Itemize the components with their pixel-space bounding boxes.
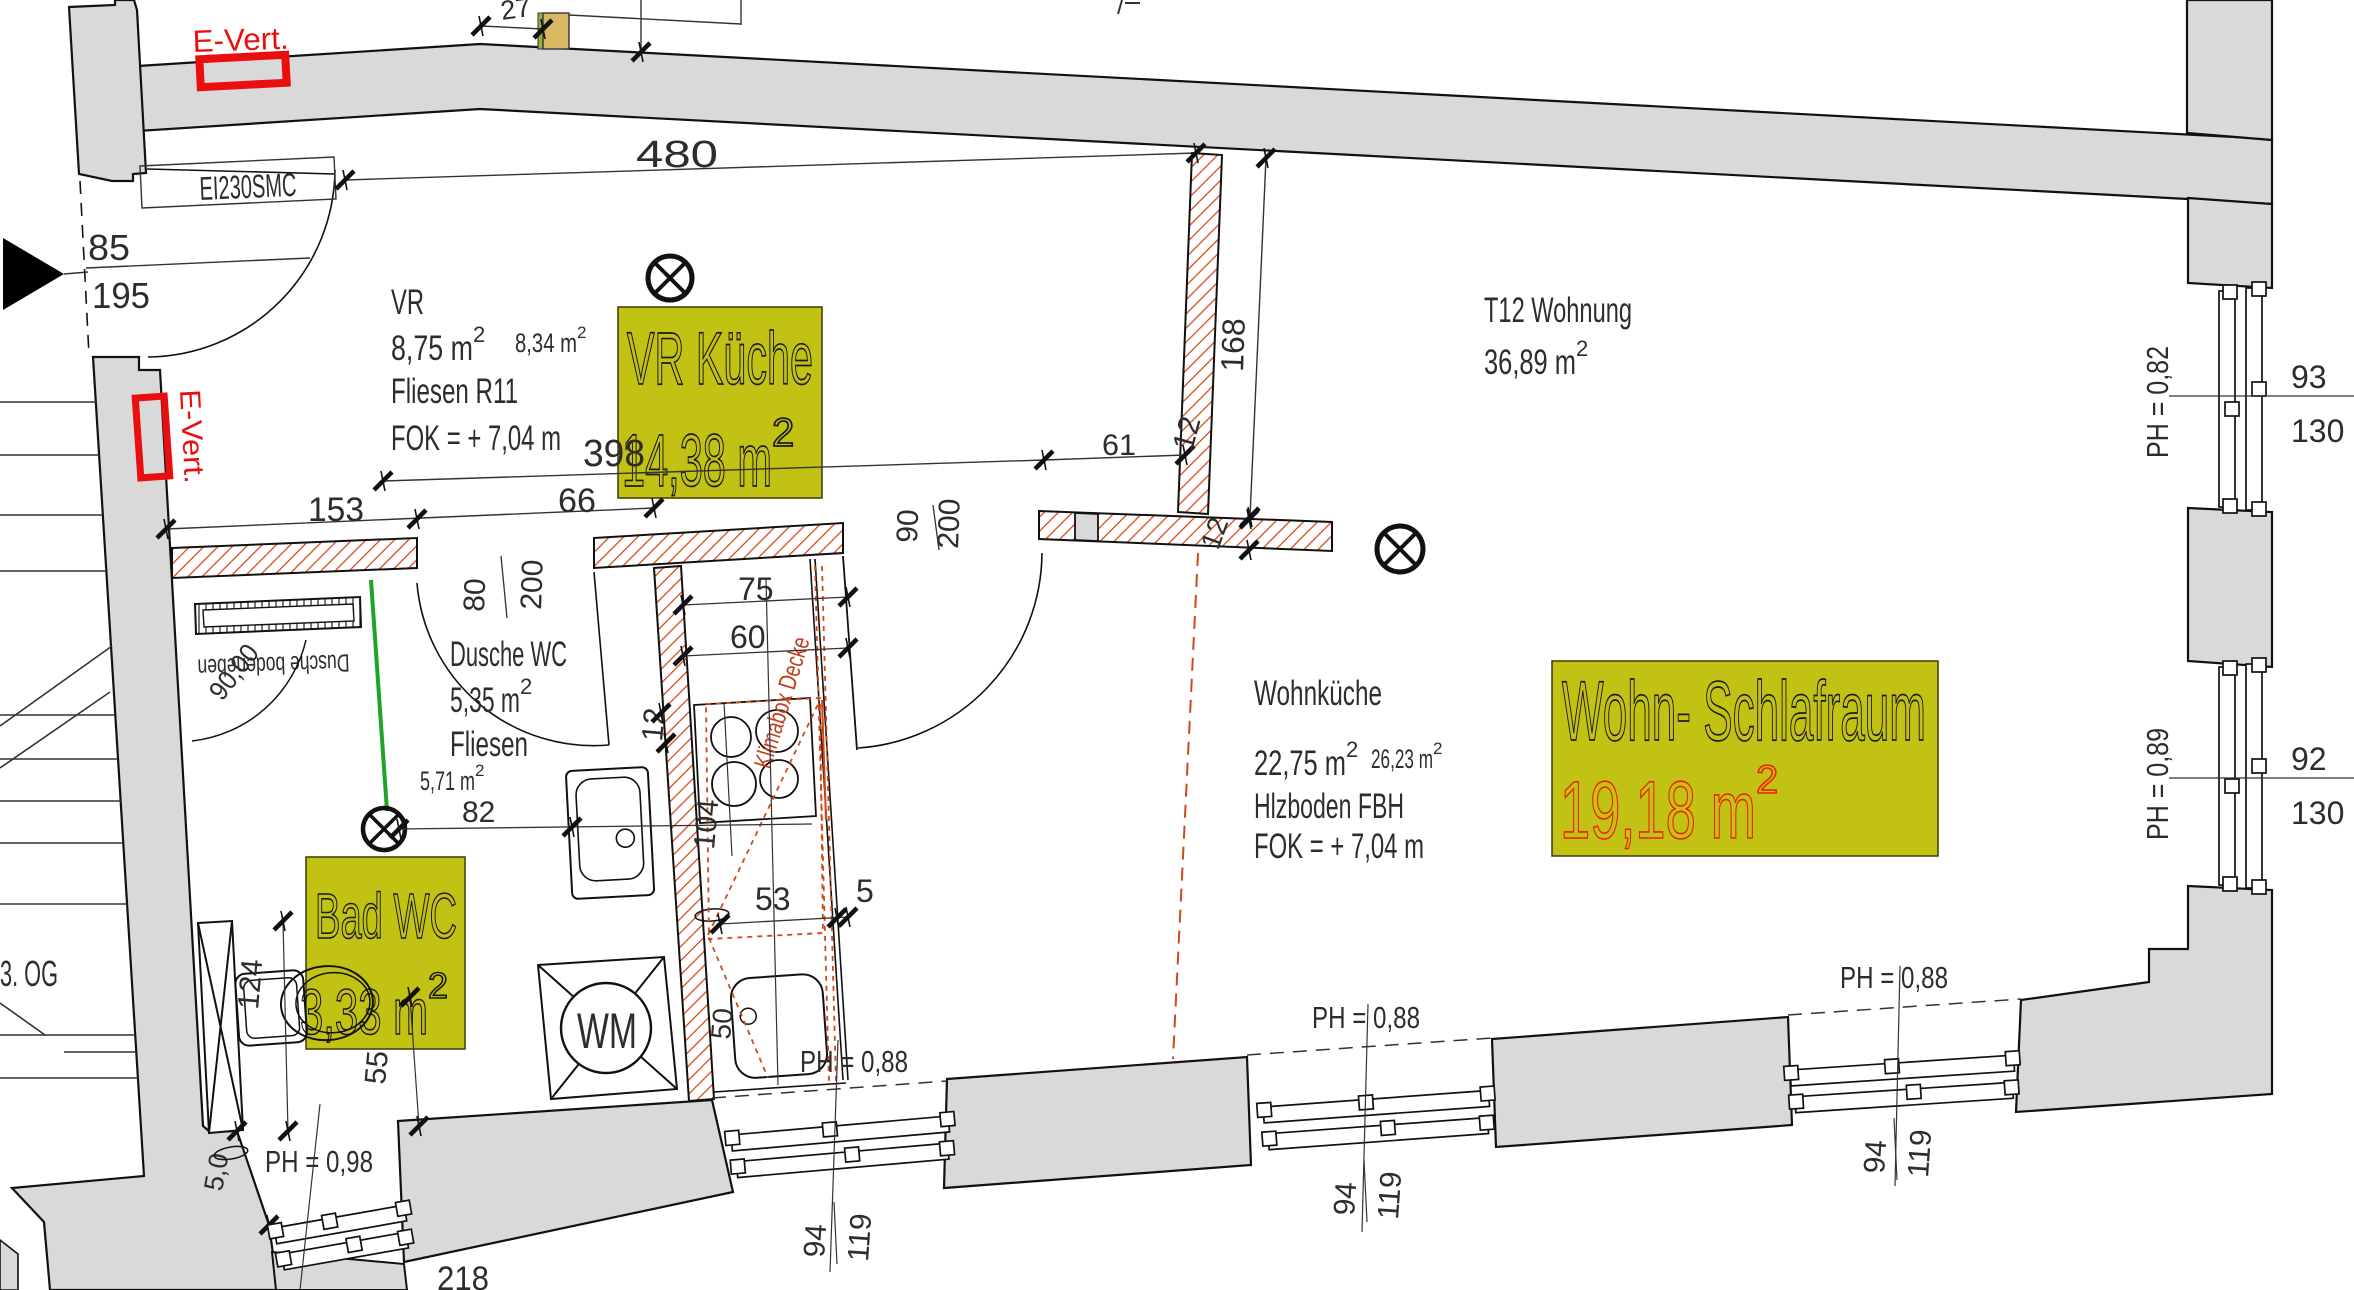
svg-text:Wohn- Schlafraum: Wohn- Schlafraum [1562, 664, 1926, 758]
svg-text:61: 61 [1102, 429, 1136, 462]
svg-text:5: 5 [856, 873, 874, 909]
svg-text:119: 119 [842, 1212, 878, 1262]
svg-text:E-Vert.: E-Vert. [192, 21, 289, 59]
svg-text:PH = 0,98: PH = 0,98 [265, 1144, 373, 1179]
svg-text:3,33 m2: 3,33 m2 [300, 965, 448, 1048]
svg-text:19,18 m2: 19,18 m2 [1560, 758, 1778, 856]
svg-text:92: 92 [2291, 741, 2327, 777]
svg-text:36,89 m2: 36,89 m2 [1484, 336, 1588, 382]
svg-text:119: 119 [1372, 1170, 1408, 1220]
svg-text:Hlzboden FBH: Hlzboden FBH [1254, 787, 1404, 826]
svg-text:119: 119 [1902, 1128, 1938, 1178]
svg-text:PH = 0,88: PH = 0,88 [1312, 1000, 1420, 1035]
svg-text:27: 27 [499, 0, 533, 26]
svg-text:200: 200 [932, 498, 967, 549]
svg-text:90: 90 [891, 509, 925, 544]
svg-text:124: 124 [232, 958, 269, 1011]
svg-text:85: 85 [88, 227, 130, 268]
svg-text:EI230SMC: EI230SMC [199, 166, 298, 207]
svg-text:93: 93 [2291, 359, 2327, 395]
svg-text:60: 60 [730, 619, 766, 655]
svg-text:168: 168 [1214, 318, 1252, 373]
svg-text:130: 130 [2291, 413, 2344, 449]
svg-text:VR Küche: VR Küche [627, 317, 813, 400]
svg-text:53: 53 [755, 881, 791, 917]
svg-text:PH = 0,82: PH = 0,82 [2140, 346, 2175, 458]
svg-text:104: 104 [688, 798, 725, 851]
svg-text:55: 55 [359, 1049, 395, 1085]
svg-text:5,71 m2: 5,71 m2 [420, 761, 484, 796]
svg-text:Dusche WC: Dusche WC [450, 635, 567, 674]
svg-text:82: 82 [462, 796, 495, 829]
svg-text:FOK = + 7,04 m: FOK = + 7,04 m [391, 419, 561, 458]
svg-text:T12 Wohnung: T12 Wohnung [1484, 291, 1632, 330]
svg-text:75: 75 [738, 571, 774, 607]
svg-text:66: 66 [558, 482, 596, 520]
svg-text:153: 153 [308, 491, 364, 529]
svg-text:94: 94 [1328, 1181, 1363, 1217]
svg-text:94: 94 [1858, 1139, 1893, 1175]
svg-text:12: 12 [636, 706, 672, 742]
svg-text:Wohnküche: Wohnküche [1254, 674, 1382, 713]
svg-text:3. OG: 3. OG [0, 953, 58, 994]
svg-text:398: 398 [583, 433, 645, 475]
svg-text:FOK = + 7,04 m: FOK = + 7,04 m [1254, 827, 1424, 866]
svg-text:PH = 0,88: PH = 0,88 [800, 1044, 908, 1079]
svg-text:8,34 m2: 8,34 m2 [515, 323, 586, 358]
svg-text:WM: WM [577, 1003, 637, 1059]
svg-text:VR: VR [391, 283, 424, 322]
svg-text:195: 195 [92, 275, 150, 316]
svg-text:200: 200 [515, 559, 550, 610]
svg-text:22,75 m2: 22,75 m2 [1254, 737, 1358, 783]
svg-text:26,23 m2: 26,23 m2 [1371, 739, 1442, 774]
svg-text:5,35 m2: 5,35 m2 [450, 674, 532, 720]
svg-text:50: 50 [705, 1007, 739, 1041]
svg-text:Fliesen: Fliesen [450, 725, 528, 764]
svg-text:PH = 0,89: PH = 0,89 [2140, 728, 2175, 840]
svg-text:218: 218 [437, 1260, 489, 1290]
svg-text:14,38 m2: 14,38 m2 [622, 411, 794, 502]
svg-text:Fliesen R11: Fliesen R11 [391, 372, 518, 411]
svg-text:94: 94 [798, 1223, 833, 1259]
svg-text:Bad WC: Bad WC [315, 880, 457, 952]
svg-text:130: 130 [2291, 795, 2344, 831]
svg-text:8,75 m2: 8,75 m2 [391, 322, 485, 368]
svg-text:5,0: 5,0 [198, 1151, 234, 1193]
svg-text:E-Vert.: E-Vert. [173, 389, 210, 485]
svg-text:480: 480 [636, 134, 718, 176]
svg-text:80: 80 [458, 578, 492, 613]
svg-text:PH = 0,88: PH = 0,88 [1840, 960, 1948, 995]
